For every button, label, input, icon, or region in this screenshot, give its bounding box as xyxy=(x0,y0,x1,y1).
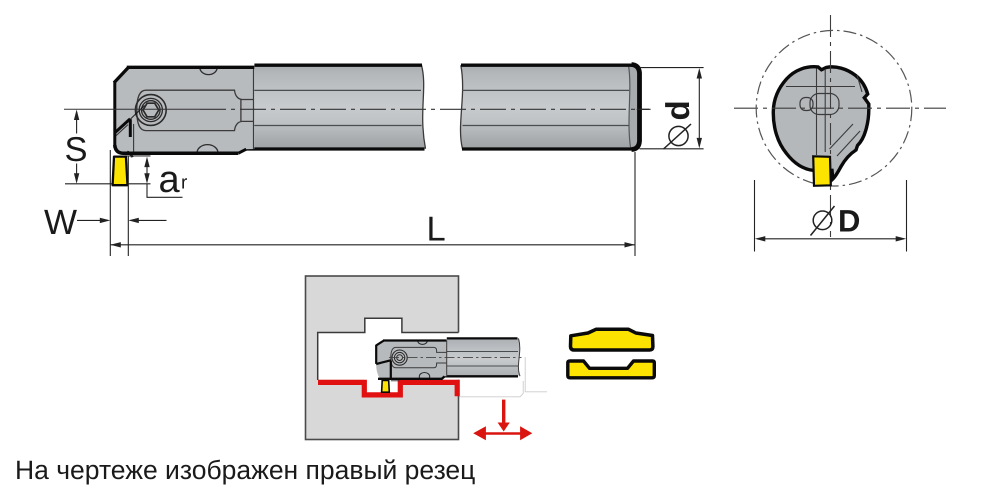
svg-text:D: D xyxy=(838,204,860,239)
svg-text:W: W xyxy=(44,203,77,242)
svg-text:S: S xyxy=(65,131,88,169)
svg-text:d: d xyxy=(659,100,696,120)
svg-text:r: r xyxy=(181,173,188,194)
svg-text:L: L xyxy=(427,210,446,248)
svg-text:a: a xyxy=(159,159,181,201)
svg-text:На чертеже изображен правый ре: На чертеже изображен правый резец xyxy=(15,455,475,485)
